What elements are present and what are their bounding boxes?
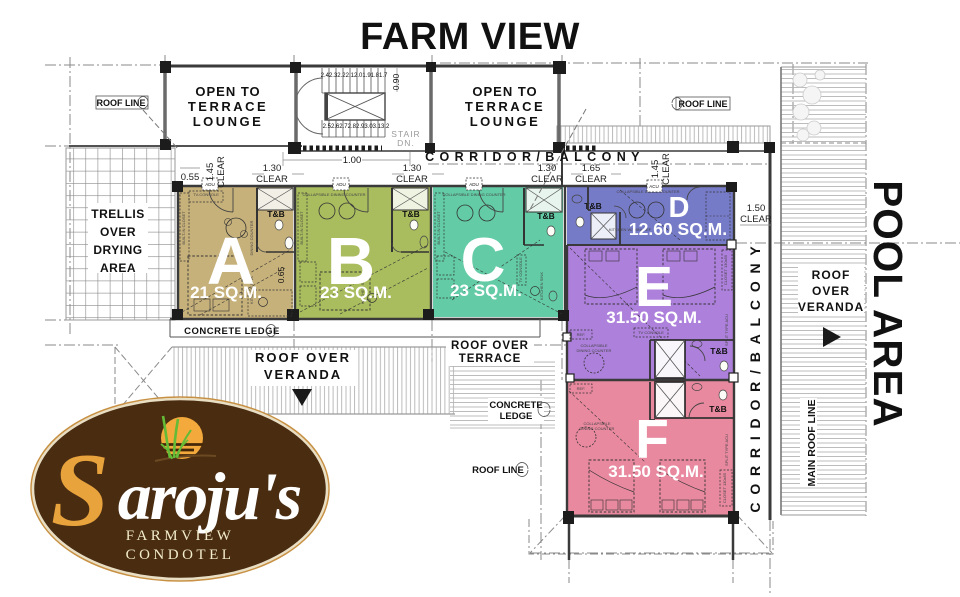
svg-text:REF.: REF. [577, 332, 586, 337]
svg-text:DRYING: DRYING [93, 243, 142, 257]
svg-text:CLEAR: CLEAR [575, 174, 607, 185]
svg-text:0.90: 0.90 [391, 73, 401, 90]
svg-text:CLEAR: CLEAR [396, 174, 428, 185]
svg-text:1.50: 1.50 [747, 203, 766, 214]
svg-text:BUILT-IN CLOSET: BUILT-IN CLOSET [181, 211, 186, 245]
svg-text:OVER: OVER [100, 225, 136, 239]
svg-text:1.30: 1.30 [538, 163, 557, 174]
svg-text:MAIN ROOF LINE: MAIN ROOF LINE [806, 400, 818, 487]
svg-text:CLEAR: CLEAR [256, 174, 288, 185]
svg-text:31.50 SQ.M.: 31.50 SQ.M. [606, 308, 701, 327]
svg-text:1.45: 1.45 [650, 160, 661, 179]
svg-text:ROOF: ROOF [812, 268, 851, 282]
svg-text:POOL AREA: POOL AREA [865, 180, 911, 428]
svg-text:VERANDA: VERANDA [264, 367, 342, 382]
svg-text:TRELLIS: TRELLIS [91, 207, 145, 221]
svg-text:CLEAR: CLEAR [661, 153, 672, 185]
svg-text:21 SQ.M.: 21 SQ.M. [190, 283, 262, 302]
svg-text:31.50 SQ.M.: 31.50 SQ.M. [608, 462, 703, 481]
svg-text:ADU: ADU [336, 182, 346, 187]
svg-text:CLOSET 130x55: CLOSET 130x55 [723, 254, 728, 285]
svg-text:ROOF OVER: ROOF OVER [451, 340, 529, 352]
svg-text:BUILT-IN CLOSET: BUILT-IN CLOSET [299, 211, 304, 245]
svg-text:2.52.62.72.82.93.03.13.2: 2.52.62.72.82.93.03.13.2 [323, 124, 390, 130]
svg-text:FARM VIEW: FARM VIEW [360, 16, 580, 58]
svg-text:COLLAPSIBLE DINING COUNTER: COLLAPSIBLE DINING COUNTER [302, 192, 365, 197]
svg-text:S: S [51, 431, 109, 548]
svg-text:AREA: AREA [100, 261, 136, 275]
svg-text:VERANDA: VERANDA [798, 300, 864, 314]
svg-text:LOUNGE: LOUNGE [470, 114, 541, 129]
svg-text:TERRACE: TERRACE [459, 353, 522, 365]
svg-text:TV CONSOLE: TV CONSOLE [518, 257, 523, 283]
svg-text:DINING COUNTER: DINING COUNTER [577, 348, 612, 353]
svg-text:23 SQ.M.: 23 SQ.M. [320, 283, 392, 302]
svg-text:T&B: T&B [537, 211, 554, 221]
svg-text:CONDOTEL: CONDOTEL [126, 547, 235, 563]
svg-text:CLEAR: CLEAR [531, 174, 563, 185]
svg-text:ACU: ACU [649, 184, 659, 189]
svg-text:T&B: T&B [584, 201, 601, 211]
svg-text:1.30: 1.30 [263, 163, 282, 174]
svg-text:BUILT-IN CLOSET: BUILT-IN CLOSET [436, 211, 441, 245]
svg-text:TERRACE: TERRACE [465, 99, 545, 114]
svg-text:CORRIDOR/BALCONY: CORRIDOR/BALCONY [425, 150, 645, 164]
svg-text:T&B: T&B [709, 404, 726, 414]
svg-text:ROOF LINE: ROOF LINE [679, 99, 728, 109]
svg-text:CLOSET 130x55: CLOSET 130x55 [722, 472, 727, 503]
svg-text:TERRACE: TERRACE [188, 99, 268, 114]
svg-text:CLEAR: CLEAR [740, 214, 772, 225]
svg-text:1.00: 1.00 [343, 155, 362, 166]
svg-text:COLLAPSIBLE DINING COUNTER: COLLAPSIBLE DINING COUNTER [442, 192, 505, 197]
svg-text:T&B: T&B [267, 209, 284, 219]
svg-text:12.60 SQ.M.: 12.60 SQ.M. [629, 219, 727, 239]
svg-text:DN.: DN. [397, 138, 415, 148]
svg-text:KITCHEN SINK: KITCHEN SINK [539, 272, 544, 300]
svg-text:OPEN TO: OPEN TO [195, 84, 260, 99]
svg-text:aroju's: aroju's [118, 458, 301, 534]
svg-text:CORRIDOR/BALCONY: CORRIDOR/BALCONY [747, 238, 763, 512]
svg-text:ADU: ADU [469, 182, 479, 187]
svg-text:1.30: 1.30 [403, 163, 422, 174]
svg-text:ADU: ADU [205, 182, 215, 187]
svg-text:1.45: 1.45 [205, 163, 216, 182]
svg-text:TV-CONSOLE: TV-CONSOLE [193, 192, 219, 197]
svg-text:SPLIT TYPE ACU: SPLIT TYPE ACU [724, 434, 729, 466]
svg-text:23 SQ.M.: 23 SQ.M. [450, 281, 522, 300]
svg-text:0.65: 0.65 [276, 266, 286, 283]
svg-text:FARMVIEW: FARMVIEW [126, 528, 235, 544]
svg-text:LOUNGE: LOUNGE [193, 114, 264, 129]
svg-text:T&B: T&B [710, 346, 727, 356]
svg-text:2.42.32.22.12.01.91.81.7: 2.42.32.22.12.01.91.81.7 [321, 73, 388, 79]
svg-text:LEDGE: LEDGE [500, 411, 533, 422]
svg-text:0.55: 0.55 [181, 172, 200, 183]
svg-text:OPEN TO: OPEN TO [472, 84, 537, 99]
svg-text:REF.: REF. [577, 386, 586, 391]
svg-text:SPLIT TYPE ACU: SPLIT TYPE ACU [724, 314, 729, 346]
svg-text:CONCRETE: CONCRETE [489, 400, 542, 411]
svg-text:1.65: 1.65 [582, 163, 601, 174]
svg-text:TV CONSOLE: TV CONSOLE [638, 330, 664, 335]
svg-text:ROOF OVER: ROOF OVER [255, 350, 351, 365]
svg-text:CONCRETE LEDGE: CONCRETE LEDGE [184, 326, 280, 337]
svg-text:T&B: T&B [402, 209, 419, 219]
svg-text:F: F [635, 408, 669, 470]
svg-text:CLEAR: CLEAR [216, 156, 227, 188]
svg-text:OVER: OVER [812, 284, 850, 298]
